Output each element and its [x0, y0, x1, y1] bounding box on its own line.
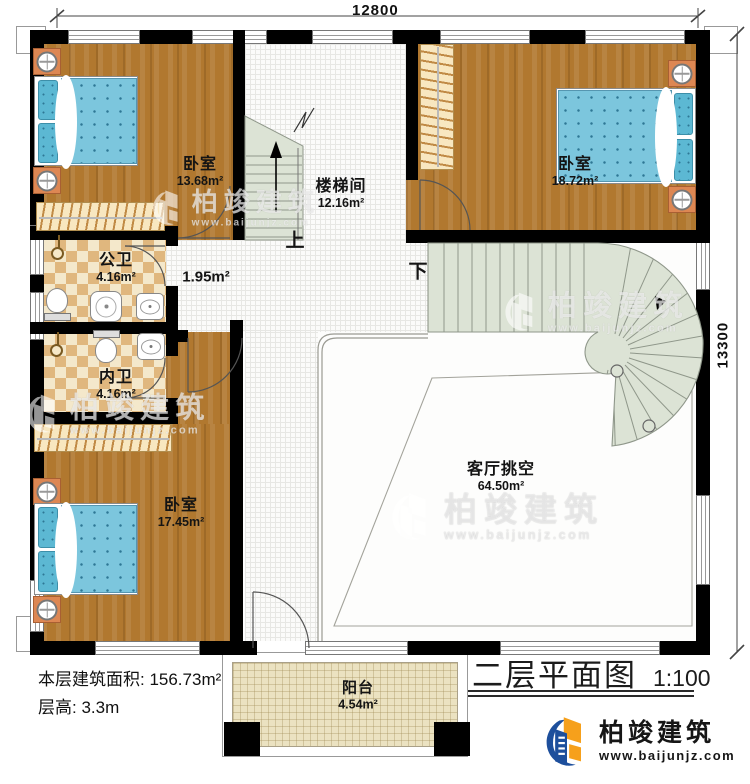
- sink: [136, 293, 164, 320]
- brand-logo-icon: [542, 714, 592, 770]
- wall-segment: [406, 30, 418, 180]
- drawing-title-block: 二层平面图 1:100: [472, 650, 711, 695]
- shower-tray: [90, 291, 122, 322]
- bed-sheet: [55, 502, 77, 598]
- wardrobe: [420, 44, 454, 170]
- wall-segment: [166, 240, 178, 246]
- nightstand-lamp: [33, 478, 61, 505]
- nightstand-lamp: [33, 596, 61, 623]
- sink: [137, 333, 165, 360]
- toilet: [44, 288, 72, 322]
- column: [224, 722, 260, 756]
- stair-down-label: 下: [408, 261, 427, 282]
- dimension-right: 13300: [715, 313, 732, 369]
- wall-segment: [530, 30, 585, 44]
- window: [585, 30, 685, 44]
- wall-segment: [178, 330, 188, 342]
- wall-segment: [140, 30, 192, 44]
- wall-segment: [30, 412, 178, 424]
- room-label-balcony: 阳台4.54m²: [338, 681, 378, 712]
- stairwell-floor: [245, 44, 406, 240]
- room-label-bedroom-bottom-left: 卧室17.45m²: [158, 497, 205, 529]
- pendant-lamp: [50, 344, 63, 357]
- room-label-living-void: 客厅挑空64.50m²: [467, 461, 535, 493]
- drawing-scale: 1:100: [653, 665, 711, 692]
- brand-name: 柏竣建筑: [599, 721, 735, 746]
- brand-footer: 柏竣建筑 www.baijunjz.com: [542, 714, 735, 770]
- nightstand-lamp: [33, 167, 61, 194]
- wall-segment: [696, 30, 710, 233]
- window: [68, 30, 140, 44]
- corridor-floor: [245, 332, 318, 641]
- floor-height-note: 层高: 3.3m: [38, 694, 221, 722]
- hall-area-label: 1.95m²: [182, 270, 230, 287]
- bed-sheet: [655, 87, 677, 187]
- room-label-stairwell: 楼梯间12.16m²: [315, 178, 366, 210]
- wardrobe: [36, 202, 165, 231]
- wall-segment: [166, 334, 178, 356]
- room-label-bedroom-top-right: 卧室18.72m²: [552, 156, 599, 188]
- wall-segment: [267, 30, 312, 44]
- title-underline: [468, 690, 694, 692]
- wall-segment: [233, 30, 245, 226]
- window: [696, 495, 710, 585]
- window: [440, 30, 530, 44]
- pendant-lamp: [51, 247, 64, 260]
- wall-segment: [233, 226, 265, 240]
- nightstand-lamp: [33, 48, 61, 75]
- bed: [34, 503, 138, 595]
- wall-segment: [406, 230, 710, 243]
- wall-segment: [230, 320, 243, 643]
- brand-website: www.baijunjz.com: [599, 748, 735, 763]
- room-label-public-bath: 公卫4.16m²: [96, 252, 136, 284]
- room-label-bedroom-top-left: 卧室13.68m²: [177, 156, 224, 188]
- column: [434, 722, 470, 756]
- dimension-top: 12800: [352, 2, 399, 19]
- stair-up-label: 上: [285, 230, 304, 251]
- window: [312, 30, 393, 44]
- wardrobe: [34, 424, 172, 452]
- bed-sheet: [55, 75, 77, 169]
- wall-segment: [30, 641, 95, 655]
- wall-segment: [30, 275, 44, 292]
- nightstand-lamp: [668, 186, 696, 213]
- window: [95, 641, 200, 655]
- toilet: [93, 330, 121, 364]
- nightstand-lamp: [668, 60, 696, 87]
- drawing-title: 二层平面图: [472, 650, 637, 695]
- room-label-private-bath: 内卫4.16m²: [96, 369, 136, 401]
- bed: [34, 76, 138, 166]
- wall-segment: [696, 290, 710, 495]
- window: [305, 641, 408, 655]
- floor-notes: 本层建筑面积: 156.73m² 层高: 3.3m: [38, 666, 221, 722]
- floor-area-note: 本层建筑面积: 156.73m²: [38, 666, 221, 694]
- title-underline: [468, 695, 694, 697]
- corridor-floor: [245, 240, 428, 332]
- window: [192, 30, 267, 44]
- wall-segment: [200, 641, 257, 655]
- floor-plan-canvas: 12800 13300 卧室13.68m² 楼梯间12.16m² 卧室18.72…: [0, 0, 750, 784]
